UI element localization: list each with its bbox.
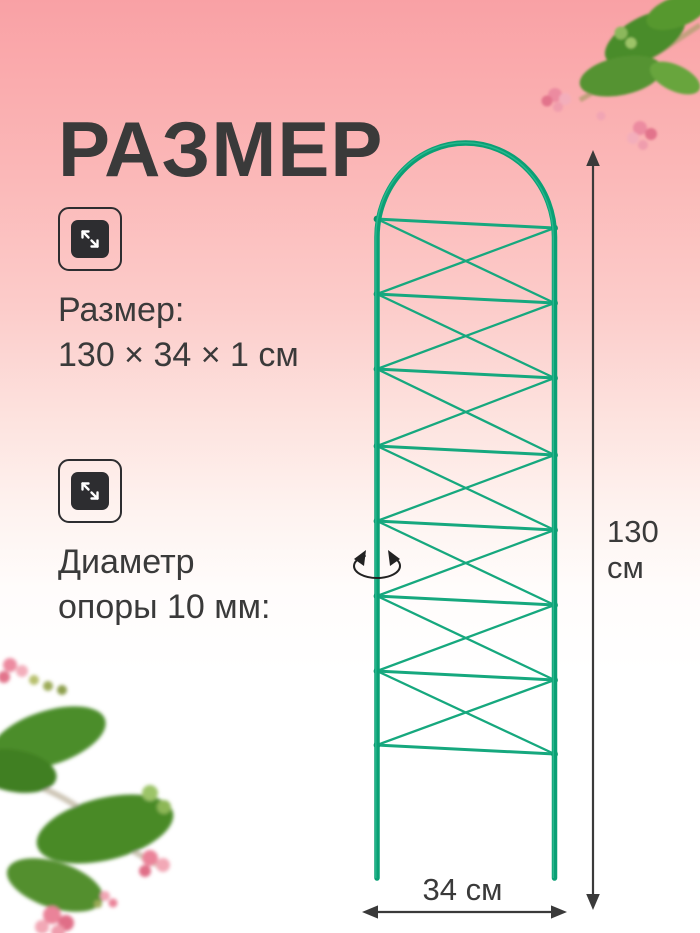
infographic-canvas: РАЗМЕР Размер: 130 × 34 × 1 см xyxy=(0,0,700,933)
trellis-lattice-wires xyxy=(374,216,558,758)
height-dimension-label: 130 см xyxy=(607,514,700,586)
trellis-diagram xyxy=(0,0,700,933)
height-dimension-arrow xyxy=(586,150,600,910)
width-dimension-label: 34 см xyxy=(395,872,530,908)
